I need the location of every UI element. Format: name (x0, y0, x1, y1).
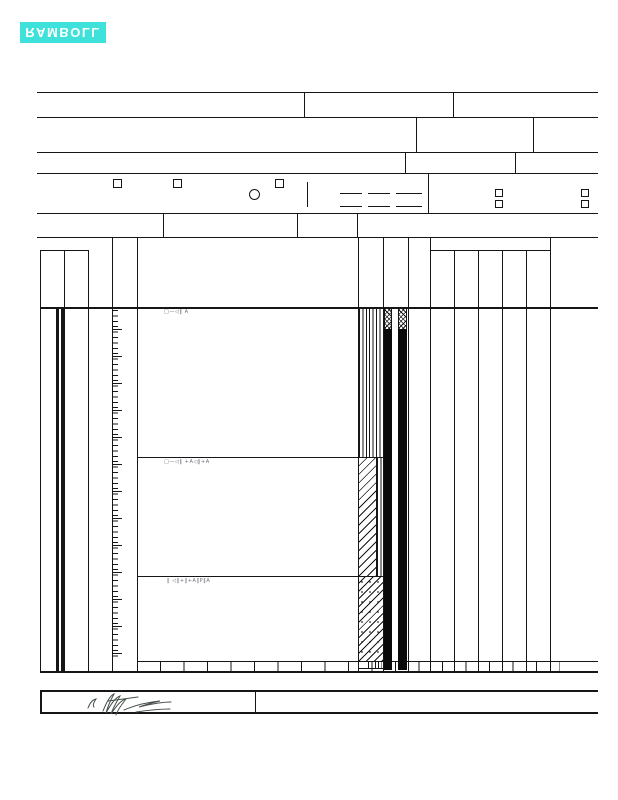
fill-in-dash (340, 206, 362, 207)
grid-line (430, 237, 431, 671)
scanned-form-page: RAMBOLL (0, 0, 618, 800)
checkbox-icon (581, 189, 589, 197)
stratum-pattern-vertical-stripes (368, 662, 382, 668)
checkbox-icon (275, 179, 284, 188)
grid-line (357, 213, 358, 237)
ramboll-logo-text: RAMBOLL (25, 25, 101, 40)
grid-line (526, 250, 527, 671)
fill-in-dash (396, 193, 422, 194)
depth-ruler-major-ticks (113, 329, 122, 662)
grid-line (40, 690, 42, 712)
grid-line (478, 250, 479, 671)
grid-line (37, 237, 598, 238)
bar-crosshatch-cap (398, 308, 407, 330)
fill-in-dash (396, 206, 422, 207)
bar-crosshatch-cap (384, 308, 392, 330)
grid-line (37, 92, 598, 93)
stratum-pattern-vertical-stripes (377, 458, 383, 576)
checkbox-icon (581, 200, 589, 208)
fill-in-dash (368, 206, 390, 207)
grid-line (533, 117, 534, 152)
grid-line (416, 117, 417, 152)
stratum-boundary-line (137, 576, 383, 577)
grid-line (405, 152, 406, 173)
signature (78, 687, 208, 717)
grid-line (40, 250, 88, 251)
grid-line (502, 250, 503, 671)
checkbox-icon (495, 200, 503, 208)
bottom-scale-ticks (160, 661, 560, 671)
ramboll-logo: RAMBOLL (20, 22, 106, 43)
stratum-pattern-vertical-stripes (359, 309, 382, 457)
solid-fill-bar (398, 329, 407, 670)
fill-in-dash (340, 193, 362, 194)
grid-line (37, 152, 598, 153)
ground-level-line (40, 307, 598, 309)
grid-line (550, 237, 551, 671)
stratum-annotation: ‖ ◁‖+‖+A‖P‖A (167, 578, 210, 584)
stratum-pattern-diagonal-hatch (359, 458, 376, 576)
stratum-pattern-hatch-dots (358, 577, 383, 661)
grid-line (408, 237, 409, 671)
grid-line (137, 237, 138, 671)
checkbox-icon (113, 179, 122, 188)
grid-line (255, 690, 256, 712)
grid-line (163, 213, 164, 237)
grid-line (307, 182, 308, 207)
stratum-annotation: □—◁‖ +A◁‖+A (164, 459, 210, 465)
grid-line (37, 213, 598, 214)
checkbox-icon (495, 189, 503, 197)
casing-line (61, 308, 64, 671)
grid-line (430, 250, 550, 251)
grid-line (40, 671, 598, 673)
fill-in-dash (368, 193, 390, 194)
grid-line (297, 213, 298, 237)
grid-line (304, 92, 305, 117)
casing-line (56, 308, 59, 671)
grid-line (428, 173, 429, 213)
grid-line (453, 92, 454, 117)
grid-line (37, 173, 598, 174)
grid-line (515, 152, 516, 173)
grid-line (88, 250, 89, 671)
grid-line (454, 250, 455, 671)
solid-fill-bar (384, 329, 392, 670)
grid-line (40, 250, 41, 671)
radio-circle-icon (249, 189, 260, 200)
grid-line (37, 117, 598, 118)
grid-line (64, 250, 65, 671)
checkbox-icon (173, 179, 182, 188)
stratum-boundary-line (137, 457, 383, 458)
stratum-annotation: □—◁‖ A (164, 309, 189, 315)
